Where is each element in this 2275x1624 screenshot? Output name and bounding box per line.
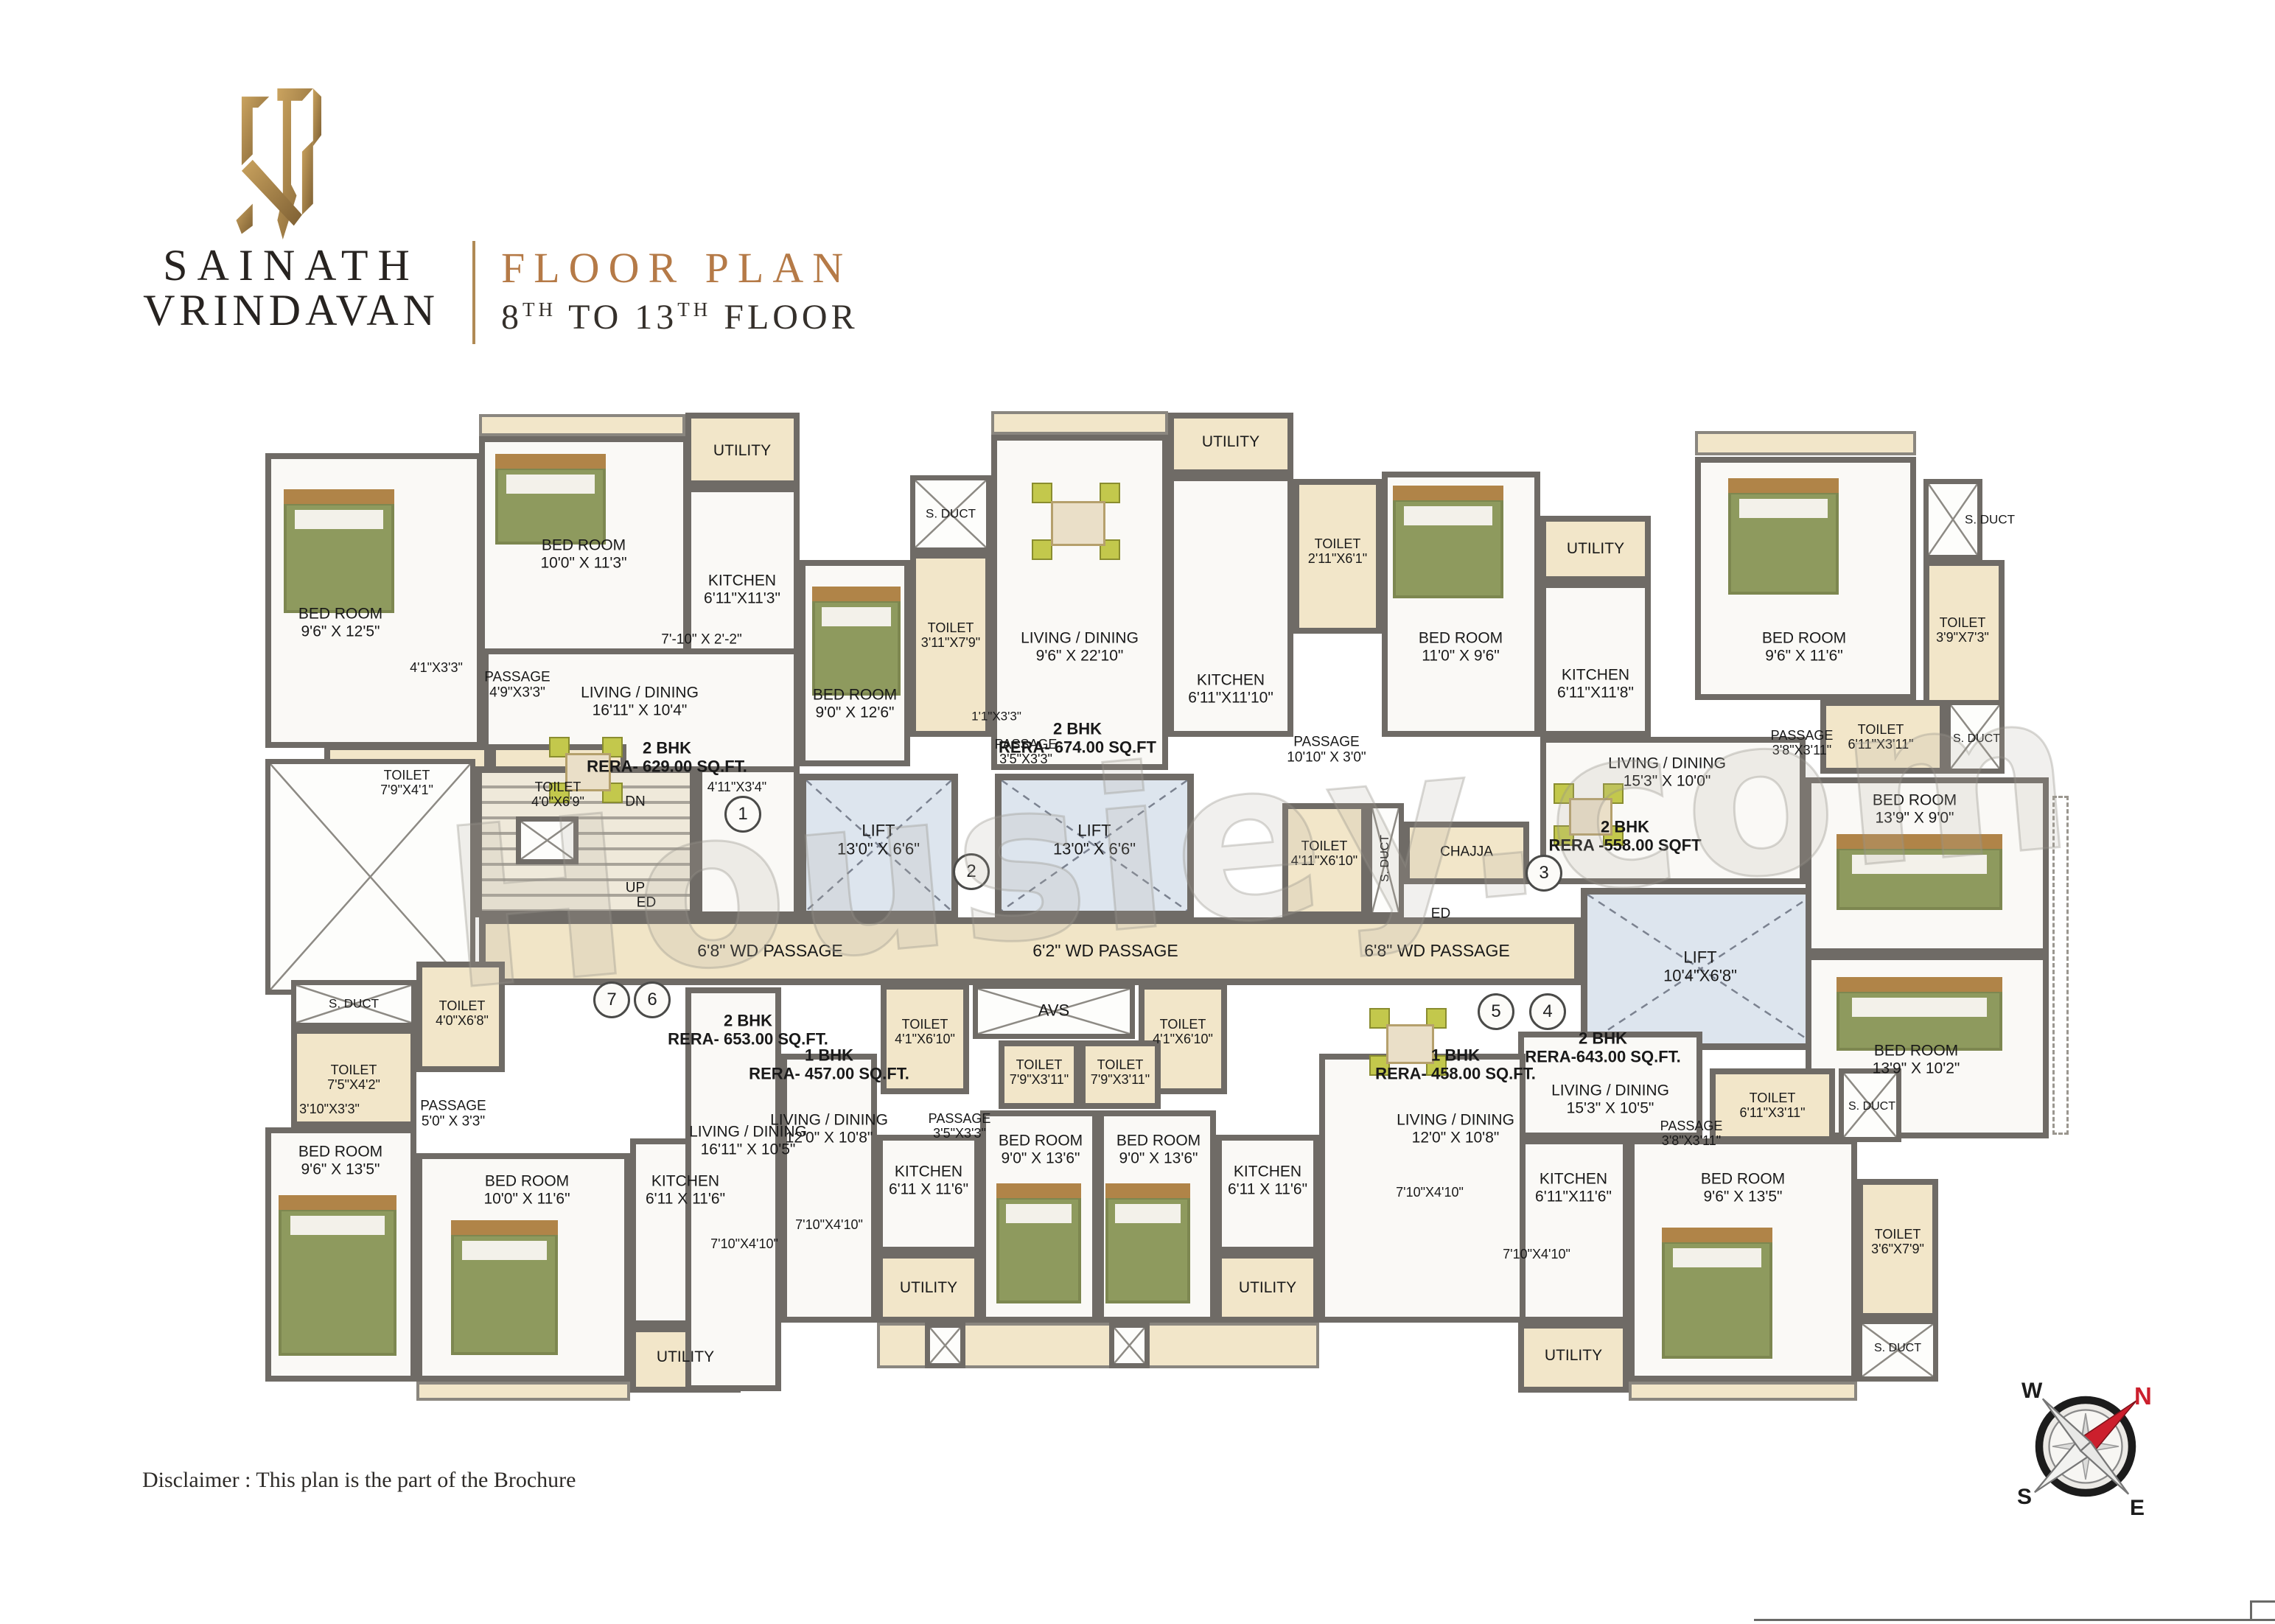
subtitle-sup: TH — [523, 298, 556, 321]
room-label: ED — [1431, 906, 1450, 921]
entry-number-badge: 2 — [953, 853, 990, 890]
room-label: S. DUCT — [926, 506, 976, 520]
brand-line2: VRINDAVAN — [118, 287, 464, 334]
room-label: KITCHEN6'11 X 11'6" — [889, 1163, 968, 1197]
room-label: BED ROOM9'0" X 13'6" — [1116, 1132, 1201, 1166]
room-label: 2 BHKRERA- 629.00 SQ.FT. — [587, 739, 747, 775]
room-kitchen — [685, 486, 800, 656]
room-label: BED ROOM10'0" X 11'6" — [483, 1172, 570, 1207]
entry-number-badge: 7 — [593, 981, 630, 1018]
room-label: PASSAGE3'5"X3'3" — [929, 1111, 991, 1141]
room-label: LIVING / DINING16'11" X 10'4" — [581, 684, 699, 718]
room-label: S. DUCT — [1965, 512, 2015, 526]
room-label: UTILITY — [1545, 1347, 1602, 1365]
bed-icon — [1662, 1241, 1772, 1359]
room-label: 7'10"X4'10" — [710, 1236, 778, 1251]
room-label: 2 BHKRERA- 674.00 SQ.FT — [999, 720, 1156, 756]
service-duct — [1109, 1323, 1150, 1368]
compass-rose: N W S E — [2008, 1369, 2163, 1524]
room-label: LIFT13'0" X 6'6" — [837, 822, 920, 858]
room-label: UTILITY — [657, 1348, 714, 1366]
subtitle-part: TO 13 — [556, 298, 677, 337]
room-label: LIVING / DINING9'6" X 22'10" — [1021, 629, 1139, 664]
room-label: BED ROOM9'6" X 11'6" — [1762, 629, 1846, 664]
room-label: KITCHEN6'11"X11'3" — [704, 572, 780, 606]
bed-icon — [1393, 499, 1503, 598]
room-label: KITCHEN6'11"X11'8" — [1557, 666, 1634, 701]
room-kitchen — [1540, 582, 1651, 737]
bed-icon — [812, 600, 901, 696]
room-label: TOILET4'11"X6'10" — [1291, 839, 1357, 868]
room-label: PASSAGE10'10" X 3'0" — [1287, 735, 1366, 766]
entry-number-badge: 6 — [634, 981, 671, 1018]
room-label: BED ROOM9'0" X 12'6" — [813, 686, 897, 721]
room-label: DN — [625, 794, 645, 809]
room-label: UTILITY — [713, 442, 771, 460]
room-label: 2 BHKRERA- 653.00 SQ.FT. — [668, 1012, 828, 1048]
service-duct — [925, 1323, 965, 1368]
disclaimer-text: Disclaimer : This plan is the part of th… — [142, 1468, 576, 1493]
room-label: S. DUCT — [329, 996, 379, 1010]
room-label: S. DUCT — [1379, 835, 1392, 882]
brand-name: SAINATH VRINDAVAN — [118, 243, 464, 334]
room-label: KITCHEN6'11 X 11'6" — [1228, 1163, 1307, 1197]
room-label: 4'1"X3'3" — [410, 660, 463, 675]
room-label: 7'10"X4'10" — [795, 1217, 863, 1232]
room-label: S. DUCT — [1874, 1342, 1921, 1355]
room-label: S. DUCT — [1953, 732, 2000, 746]
room-label: UTILITY — [1239, 1279, 1296, 1297]
compass-north-label: N — [2134, 1382, 2152, 1410]
room-label: LIVING / DINING15'3" X 10'0" — [1608, 755, 1726, 789]
bed-icon — [495, 467, 606, 545]
room-label: KITCHEN6'11 X 11'6" — [646, 1172, 725, 1207]
room-label: CHAJJA — [1440, 844, 1493, 859]
subtitle-sup: TH — [677, 298, 711, 321]
room-label: 7'10"X4'10" — [1396, 1185, 1464, 1200]
room-label: PASSAGE3'8"X3'11" — [1771, 728, 1834, 757]
page-edge-line — [1754, 1619, 2275, 1621]
room-label: 6'8" WD PASSAGE — [697, 942, 842, 961]
subtitle-part: FLOOR — [711, 298, 858, 337]
room-label: BED ROOM13'9" X 9'0" — [1873, 791, 1957, 826]
room-label: BED ROOM11'0" X 9'6" — [1419, 629, 1503, 664]
bed-icon — [1105, 1197, 1190, 1303]
room-label: TOILET3'9"X7'3" — [1936, 615, 1989, 645]
room-label: TOILET4'0"X6'9" — [531, 780, 584, 809]
room-label: LIVING / DINING15'3" X 10'5" — [1551, 1082, 1669, 1116]
room-label: UP — [626, 880, 645, 895]
header-divider — [472, 241, 475, 344]
room-label: 1 BHKRERA- 457.00 SQ.FT. — [749, 1046, 909, 1082]
bed-icon — [279, 1208, 396, 1356]
room-label: TOILET7'9"X3'11" — [1010, 1057, 1069, 1087]
room-label: TOILET6'11"X3'11" — [1739, 1091, 1805, 1120]
room-label: LIVING / DINING12'0" X 10'8" — [1397, 1111, 1514, 1146]
bed-icon — [451, 1233, 558, 1355]
room-label: 4'11"X3'4" — [707, 780, 766, 794]
open-shaft — [265, 759, 475, 995]
page-title: FLOOR PLAN — [501, 243, 852, 293]
entry-number-badge: 5 — [1478, 993, 1514, 1030]
room-label: KITCHEN6'11"X11'10" — [1188, 671, 1273, 706]
subtitle-part: 8 — [501, 298, 523, 337]
room-label: S. DUCT — [1848, 1100, 1895, 1113]
room-label: 7'10"X4'10" — [1503, 1247, 1570, 1261]
entry-number-badge: 1 — [724, 796, 761, 833]
room-label: TOILET3'11"X7'9" — [921, 620, 980, 650]
room-label: TOILET2'11"X6'1" — [1308, 536, 1367, 566]
page-corner-mark — [2250, 1600, 2252, 1621]
balcony-strip — [1629, 1382, 1857, 1401]
room-label: TOILET3'6"X7'9" — [1871, 1227, 1924, 1256]
room-label: PASSAGE5'0" X 3'3" — [420, 1099, 486, 1130]
room-label: 6'8" WD PASSAGE — [1364, 942, 1509, 961]
room-label: 6'2" WD PASSAGE — [1032, 942, 1178, 961]
brand-logo — [221, 88, 361, 239]
entry-number-badge: 4 — [1529, 993, 1566, 1030]
room-label: BED ROOM13'9" X 10'2" — [1873, 1042, 1960, 1077]
room-label: LIFT10'4"X6'8" — [1663, 948, 1737, 984]
room-label: 2 BHKRERA -558.00 SQFT — [1548, 818, 1701, 854]
stair-well — [516, 816, 579, 864]
room-label: BED ROOM9'6" X 13'5" — [298, 1143, 382, 1177]
room-label: BED ROOM9'6" X 12'5" — [298, 605, 382, 640]
room-label: ED — [637, 895, 656, 910]
bed-icon — [996, 1197, 1081, 1303]
bed-icon — [1837, 847, 2002, 910]
room-label: BED ROOM9'0" X 13'6" — [999, 1132, 1083, 1166]
room-label: TOILET7'9"X4'1" — [380, 768, 433, 797]
room-label: LIFT13'0" X 6'6" — [1053, 822, 1136, 858]
room-label: BED ROOM10'0" X 11'3" — [540, 536, 626, 571]
room-label: 1 BHKRERA- 458.00 SQ.FT. — [1375, 1046, 1536, 1082]
dining-set-icon — [1032, 483, 1120, 560]
room-label: TOILET7'5"X4'2" — [327, 1063, 380, 1092]
room-label: LIVING / DINING12'0" X 10'8" — [770, 1111, 888, 1146]
room-label: KITCHEN6'11"X11'6" — [1535, 1170, 1612, 1205]
room-label: UTILITY — [1567, 540, 1624, 558]
room-label: TOILET7'9"X3'11" — [1091, 1057, 1150, 1087]
compass-west-label: W — [2021, 1379, 2043, 1403]
room-label: TOILET4'1"X6'10" — [895, 1017, 955, 1046]
room-label: AVS — [1038, 1002, 1069, 1021]
room-kitchen — [1518, 1138, 1629, 1323]
room-label: BED ROOM9'6" X 13'5" — [1701, 1170, 1785, 1205]
balcony-strip — [991, 411, 1168, 435]
page-corner-mark — [2250, 1600, 2275, 1603]
balcony-dashed-edge — [2052, 796, 2069, 1135]
room-label: 3'10"X3'3" — [299, 1102, 360, 1116]
bed-icon — [1728, 491, 1839, 595]
floor-plan-page: SAINATH VRINDAVAN FLOOR PLAN 8TH TO 13TH… — [0, 0, 2275, 1624]
balcony-strip — [479, 414, 685, 436]
room-label: TOILET6'11"X3'11" — [1848, 722, 1913, 752]
bed-icon — [284, 503, 394, 613]
compass-east-label: E — [2130, 1496, 2145, 1520]
room-label: 7'-10" X 2'-2" — [661, 631, 741, 647]
balcony-strip — [416, 1382, 630, 1401]
room-living-dining — [781, 1054, 877, 1323]
room-label: UTILITY — [1202, 433, 1259, 451]
entry-number-badge: 3 — [1526, 855, 1562, 892]
room-label: TOILET4'0"X6'8" — [436, 998, 489, 1028]
room-label: PASSAGE4'9"X3'3" — [484, 670, 550, 701]
balcony-strip — [1695, 431, 1916, 455]
page-subtitle: 8TH TO 13TH FLOOR — [501, 297, 859, 337]
brand-line1: SAINATH — [118, 243, 464, 287]
room-label: 2 BHKRERA-643.00 SQ.FT. — [1525, 1029, 1681, 1065]
room-label: PASSAGE3'8"X3'11" — [1660, 1119, 1723, 1148]
room-label: UTILITY — [900, 1279, 957, 1297]
room-label: TOILET4'1"X6'10" — [1153, 1017, 1213, 1046]
compass-south-label: S — [2017, 1485, 2032, 1509]
